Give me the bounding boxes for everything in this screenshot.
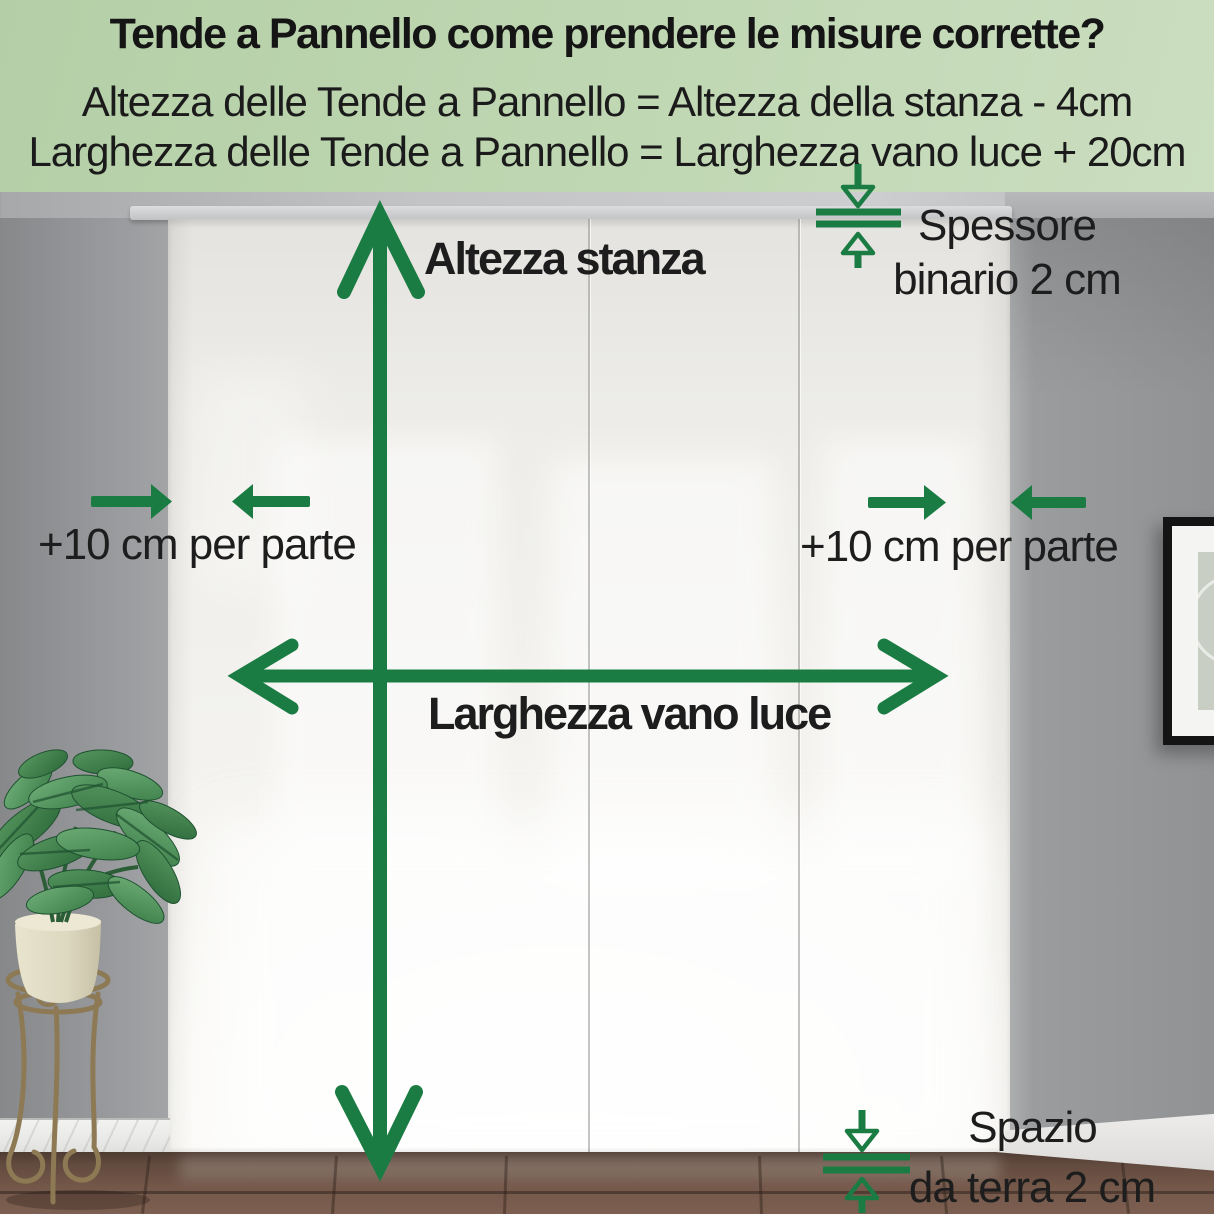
height-formula: Altezza delle Tende a Pannello = Altezza… <box>0 77 1214 127</box>
curtain-reflection <box>823 439 973 879</box>
picture-frame <box>1163 517 1214 745</box>
panel-curtain-measurement-infographic: Tende a Pannello come prendere le misure… <box>0 0 1214 1214</box>
picture-art-circle <box>1198 574 1214 666</box>
floor-gap-label-line2: da terra 2 cm <box>903 1163 1161 1213</box>
picture-mat <box>1172 526 1214 736</box>
width-formula: Larghezza delle Tende a Pannello = Largh… <box>0 127 1214 177</box>
potted-plant <box>0 732 238 1214</box>
header-band: Tende a Pannello come prendere le misure… <box>0 0 1214 192</box>
curtain-glow <box>208 819 988 1160</box>
floor-reflection <box>180 1155 1000 1179</box>
plant-shadow <box>6 1190 150 1210</box>
track-thickness-label-line1: Spessore <box>900 201 1114 251</box>
right-margin-label: +10 cm per parte <box>800 522 1118 572</box>
page-title: Tende a Pannello come prendere le misure… <box>0 10 1214 59</box>
measurement-formulas: Altezza delle Tende a Pannello = Altezza… <box>0 77 1214 177</box>
left-margin-label: +10 cm per parte <box>38 520 356 570</box>
room-height-label: Altezza stanza <box>424 233 704 285</box>
tile-grout-line <box>503 1156 508 1214</box>
picture-art <box>1198 552 1214 710</box>
curtain-reflection <box>273 439 498 869</box>
plant-pot <box>15 913 101 1003</box>
opening-width-label: Larghezza vano luce <box>428 688 830 740</box>
floor-gap-label-line1: Spazio <box>955 1103 1110 1153</box>
track-thickness-label-line2: binario 2 cm <box>880 255 1134 305</box>
curtain-track <box>130 206 1012 220</box>
plant-leaves <box>0 744 202 931</box>
